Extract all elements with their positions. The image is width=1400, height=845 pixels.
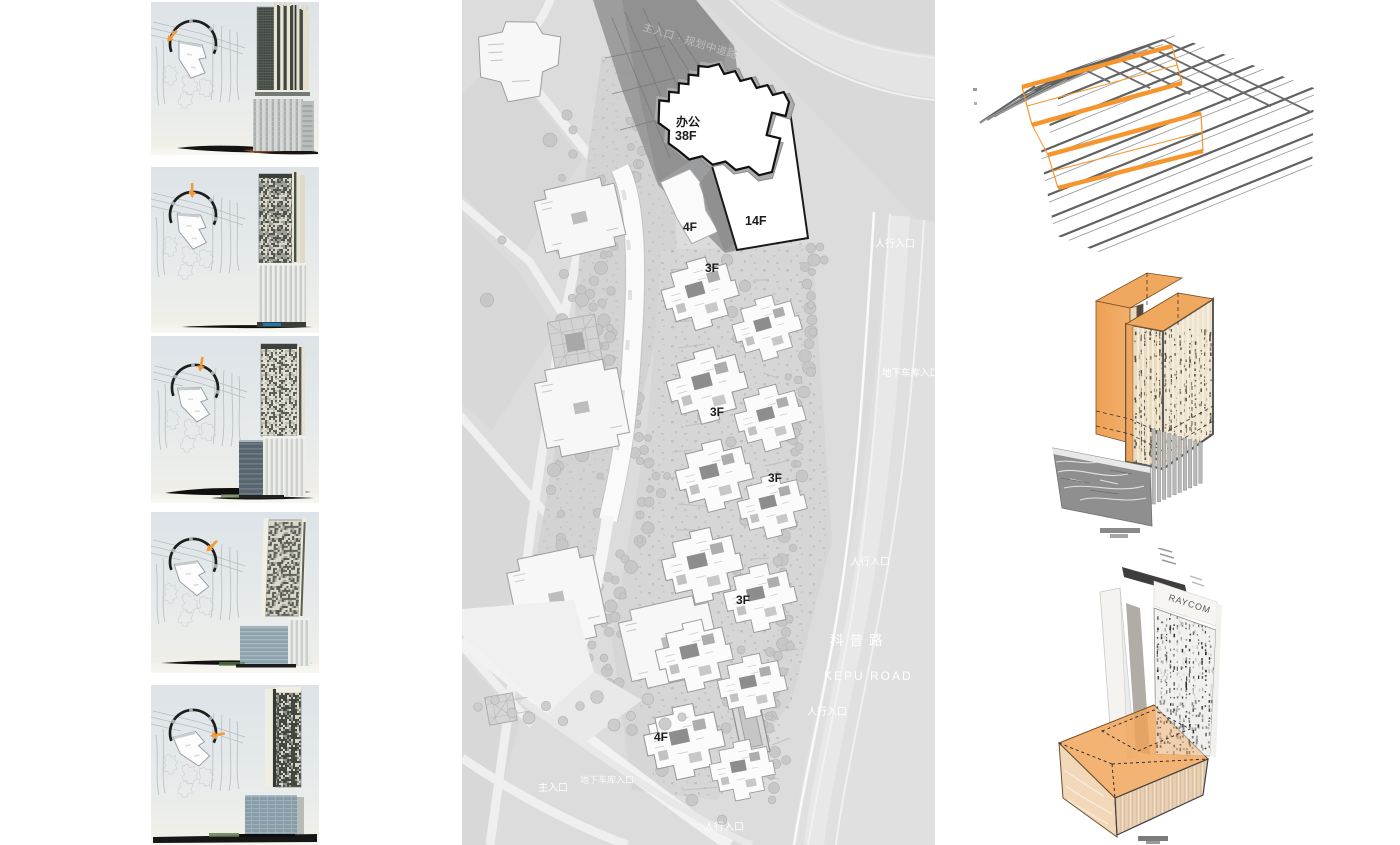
svg-text:办公: 办公: [676, 114, 700, 129]
svg-text:38F: 38F: [675, 129, 697, 143]
svg-text:3F: 3F: [768, 471, 782, 485]
svg-text:14F: 14F: [745, 214, 767, 228]
svg-text:3F: 3F: [710, 405, 724, 419]
svg-text:地下车库入口: 地下车库入口: [580, 774, 634, 785]
svg-text:科普路: 科普路: [830, 633, 889, 648]
svg-text:主入口: 主入口: [538, 782, 568, 794]
svg-text:人行入口: 人行入口: [850, 555, 890, 568]
svg-text:人行入口: 人行入口: [875, 237, 915, 250]
svg-text:KEPU ROAD: KEPU ROAD: [824, 669, 913, 683]
svg-text:4F: 4F: [683, 220, 697, 234]
svg-text:地下车库入口: 地下车库入口: [882, 367, 935, 379]
svg-text:人行入口: 人行入口: [704, 820, 744, 833]
svg-text:3F: 3F: [736, 593, 750, 607]
svg-text:4F: 4F: [654, 730, 668, 744]
svg-text:人行入口: 人行入口: [807, 705, 847, 718]
svg-text:3F: 3F: [705, 261, 719, 275]
